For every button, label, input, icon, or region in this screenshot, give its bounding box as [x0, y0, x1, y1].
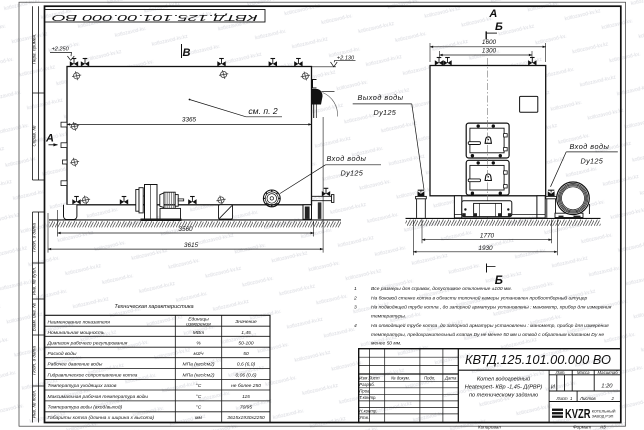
svg-text:Копировал: Копировал — [478, 424, 501, 429]
svg-text:не более 250: не более 250 — [231, 383, 261, 389]
svg-text:м3/ч: м3/ч — [194, 351, 204, 357]
svg-text:Выход воды: Выход воды — [358, 93, 404, 102]
svg-text:менее 50 мм.: менее 50 мм. — [371, 341, 401, 347]
svg-text:А3: А3 — [599, 424, 606, 429]
svg-text:70/95: 70/95 — [240, 405, 253, 411]
svg-text:МВт: МВт — [193, 330, 204, 336]
svg-text:КОТЕЛЬНЫЙ: КОТЕЛЬНЫЙ — [592, 410, 616, 414]
svg-text:Значение: Значение — [235, 319, 257, 325]
svg-text:2: 2 — [353, 296, 357, 302]
svg-text:Температура воды (вход/выход): Температура воды (вход/выход) — [48, 405, 123, 411]
svg-text:3560: 3560 — [178, 226, 193, 233]
svg-text:КВТД.125.101.00.000 ВО: КВТД.125.101.00.000 ВО — [51, 13, 258, 23]
svg-text:ЗАВОД РЭП: ЗАВОД РЭП — [592, 415, 614, 419]
svg-text:Dy125: Dy125 — [341, 168, 364, 177]
svg-text:Наименование показателя: Наименование показателя — [48, 320, 111, 326]
svg-text:Разраб.: Разраб. — [359, 382, 375, 387]
svg-text:На боковой стенке котла в обла: На боковой стенке котла в области топочн… — [371, 295, 587, 302]
svg-text:измерения: измерения — [186, 323, 211, 328]
svg-text:по техническому заданию: по техническому заданию — [469, 392, 539, 398]
svg-text:1770: 1770 — [480, 233, 495, 240]
svg-text:Расход воды: Расход воды — [48, 351, 77, 357]
svg-text:Т.контр.: Т.контр. — [359, 395, 376, 400]
svg-text:Диапазон рабочего регулировани: Диапазон рабочего регулирования — [47, 340, 128, 346]
svg-text:температуры.: температуры. — [371, 315, 406, 320]
svg-text:0,06 (0,6): 0,06 (0,6) — [236, 372, 257, 378]
svg-text:Номинальная мощность: Номинальная мощность — [48, 330, 106, 336]
svg-text:50: 50 — [243, 351, 249, 357]
svg-text:1300: 1300 — [482, 47, 497, 54]
svg-text:115: 115 — [242, 394, 250, 400]
svg-text:Н.контр.: Н.контр. — [359, 408, 377, 413]
svg-text:И: И — [551, 385, 555, 391]
svg-text:Пров.: Пров. — [359, 389, 370, 394]
svg-text:Листов: Листов — [579, 396, 596, 401]
svg-text:Dy125: Dy125 — [581, 157, 604, 166]
svg-text:Справ. №: Справ. № — [32, 126, 37, 147]
svg-text:1930: 1930 — [478, 245, 493, 252]
svg-text:Лист: Лист — [556, 396, 568, 401]
svg-text:Котел водогрейный: Котел водогрейный — [477, 375, 530, 382]
svg-text:°С: °С — [196, 394, 202, 400]
svg-text:На отводящей трубе котла ,до з: На отводящей трубе котла ,до запорной ар… — [371, 322, 609, 329]
svg-text:1,45: 1,45 — [241, 330, 251, 336]
svg-text:Все размеры для справок, допус: Все размеры для справок, допустимое откл… — [371, 286, 512, 292]
svg-text:В: В — [183, 47, 191, 59]
svg-text:3365: 3365 — [182, 116, 197, 123]
svg-text:Инв. № подл.: Инв. № подл. — [32, 390, 37, 419]
svg-text:Дата: Дата — [444, 376, 457, 381]
svg-text:KVZR: KVZR — [565, 406, 591, 421]
svg-text:температуры, предохранительный: температуры, предохранительный клапан Dу… — [371, 331, 604, 338]
svg-text:1:20: 1:20 — [601, 384, 613, 390]
svg-text:МПа (кгс/см2): МПа (кгс/см2) — [183, 362, 215, 368]
svg-text:3615: 3615 — [184, 242, 199, 249]
svg-text:Вход воды: Вход воды — [570, 142, 610, 151]
svg-text:Подп.: Подп. — [424, 376, 435, 381]
svg-text:0,6 (6,0): 0,6 (6,0) — [237, 362, 256, 368]
svg-text:На подводящей трубе котла ,: На подводящей трубе котла , до запорной … — [371, 304, 612, 311]
svg-text:Масса: Масса — [577, 370, 590, 375]
svg-text:Габариты котла (длинна х ширин: Габариты котла (длинна х ширина х высота… — [48, 415, 155, 421]
svg-text:Температура уходящих газов: Температура уходящих газов — [48, 383, 117, 389]
svg-text:КВТД.125.101.00.000 ВО: КВТД.125.101.00.000 ВО — [465, 352, 611, 367]
svg-text:Лит.: Лит. — [555, 370, 566, 375]
svg-text:Перв. примен.: Перв. примен. — [32, 34, 37, 65]
svg-text:Техническая характеристика: Техническая характеристика — [114, 304, 193, 310]
svg-text:см. п. 2: см. п. 2 — [248, 106, 277, 116]
svg-text:Изм Лист: Изм Лист — [359, 376, 380, 381]
svg-text:%: % — [196, 340, 201, 346]
svg-text:Рабочее давление воды: Рабочее давление воды — [48, 362, 103, 368]
svg-text:Инв. № дубл.: Инв. № дубл. — [32, 267, 37, 295]
svg-text:°С: °С — [196, 383, 202, 389]
svg-text:Подп. и дата: Подп. и дата — [32, 346, 37, 375]
svg-text:3615х1930х2250: 3615х1930х2250 — [227, 415, 265, 421]
svg-text:№ докум.: № докум. — [391, 376, 410, 381]
svg-text:Масштаб: Масштаб — [598, 370, 619, 375]
svg-text:4: 4 — [354, 323, 357, 329]
svg-text:Взам. инв. №: Взам. инв. № — [32, 303, 37, 331]
svg-text:А: А — [45, 133, 54, 145]
svg-text:Утв.: Утв. — [359, 415, 369, 420]
svg-text:1600: 1600 — [482, 39, 497, 46]
svg-text:+2.250: +2.250 — [52, 47, 70, 53]
svg-text:Подп. и дата: Подп. и дата — [32, 223, 37, 252]
svg-text:МПа (кгс/см2): МПа (кгс/см2) — [183, 372, 215, 378]
svg-text:50-100: 50-100 — [238, 340, 254, 346]
svg-text:Формат: Формат — [573, 424, 591, 429]
svg-text:Б: Б — [495, 21, 503, 33]
svg-text:Dy125: Dy125 — [374, 108, 397, 117]
svg-text:мм: мм — [195, 416, 202, 421]
svg-text:Б: Б — [495, 275, 503, 287]
svg-text:°С: °С — [196, 405, 202, 411]
svg-text:Вход воды: Вход воды — [327, 154, 367, 163]
svg-text:Heatexpert- КВр -1,45- Д(РВР): Heatexpert- КВр -1,45- Д(РВР) — [465, 384, 543, 390]
svg-text:А: А — [488, 8, 497, 20]
svg-text:3: 3 — [354, 305, 357, 311]
svg-text:Максимальная рабочая температу: Максимальная рабочая температура воды — [48, 394, 149, 400]
svg-text:1: 1 — [354, 286, 357, 292]
svg-text:Гидравлическое сопротивление к: Гидравлическое сопротивление котла — [48, 372, 138, 378]
